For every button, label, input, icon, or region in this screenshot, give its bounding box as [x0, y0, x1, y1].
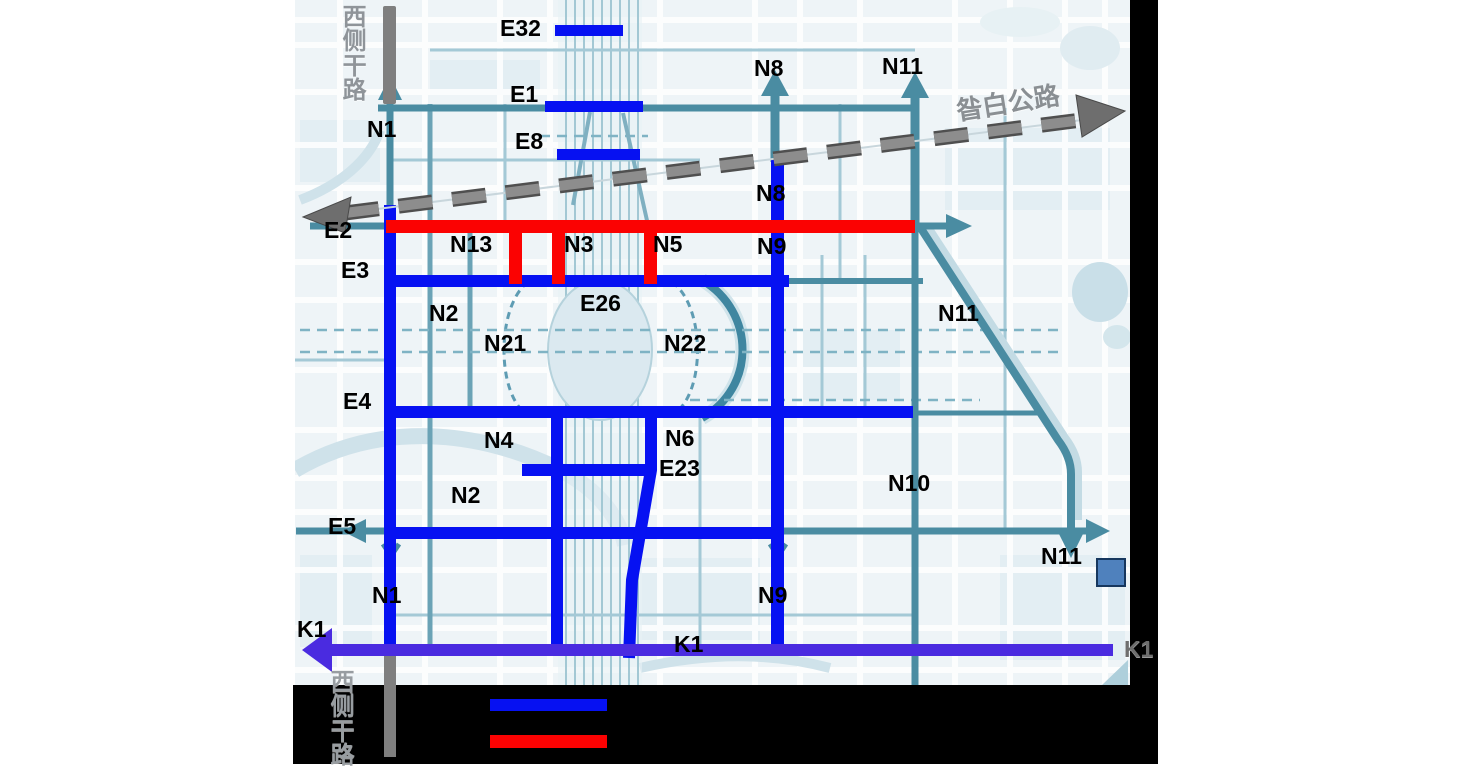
- gray-road-bar-bottom: [384, 685, 396, 757]
- road-N5-red: [644, 222, 657, 284]
- planning-map-page: 西侧干路E32E1E8N1N8N11昝白公路E2N8N13N3N5N9E3N2E…: [0, 0, 1472, 778]
- blue-square-marker: [1096, 558, 1126, 587]
- road-N3-red: [552, 222, 565, 284]
- road-E32: [555, 25, 623, 36]
- black-bar-bottom: [293, 685, 1158, 764]
- legend-red-line: [490, 735, 607, 748]
- road-E8: [557, 149, 640, 160]
- road-E5: [390, 527, 778, 539]
- map-graphic: [295, 0, 1130, 685]
- gray-road-bar-top: [383, 6, 396, 104]
- road-N4-blue: [551, 412, 563, 656]
- road-N13-red: [509, 222, 522, 284]
- road-E3: [390, 275, 789, 287]
- road-E23-blue: [522, 464, 652, 476]
- city-map: [295, 0, 1130, 685]
- road-N1-blue: [384, 205, 396, 656]
- legend-blue-line: [490, 699, 607, 711]
- black-strip-right: [1130, 0, 1158, 764]
- road-E1: [545, 101, 643, 112]
